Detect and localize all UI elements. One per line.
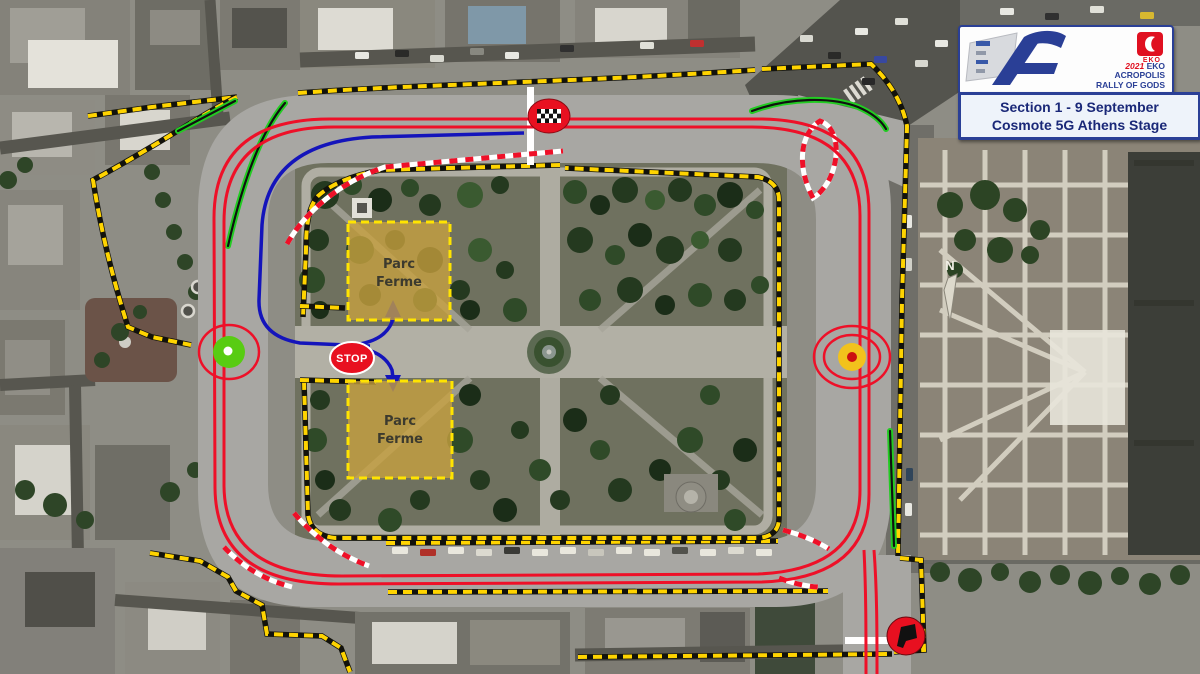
parc-ferme-upper: Parc Ferme [348,222,450,320]
parliament-building [1128,152,1200,555]
rally-year: 2021 [1125,61,1144,71]
stop-sign: STOP [330,342,374,374]
parc-ferme-label: Parc [384,414,416,429]
church-dome [664,474,718,512]
parc-ferme-label: Parc [383,257,415,272]
fountain [527,330,571,374]
rally-logo-panel: EKO 2021 EKO ACROPOLIS RALLY OF GODS [958,25,1174,95]
eko-logo-icon [1137,32,1163,56]
start-marker [887,617,925,655]
section-line: Section 1 - 9 September [1000,98,1159,116]
syntagma-plaza: N [918,138,1200,560]
svg-text:Ferme: Ferme [376,275,422,290]
finish-marker [528,99,570,133]
svg-text:STOP: STOP [336,353,368,365]
rally-stage-map: N [0,0,1200,674]
stage-name: Cosmote 5G Athens Stage [992,116,1167,134]
svg-text:Ferme: Ferme [377,432,423,447]
rally-title: 2021 EKO ACROPOLIS RALLY OF GODS [1065,62,1165,91]
stage-info-panel: Section 1 - 9 September Cosmote 5G Athen… [958,92,1200,140]
parc-ferme-lower: Parc Ferme [348,381,452,478]
svg-text:N: N [945,258,954,273]
checkered-flag-icon [537,109,561,123]
rally-brand: EKO [1147,61,1165,71]
